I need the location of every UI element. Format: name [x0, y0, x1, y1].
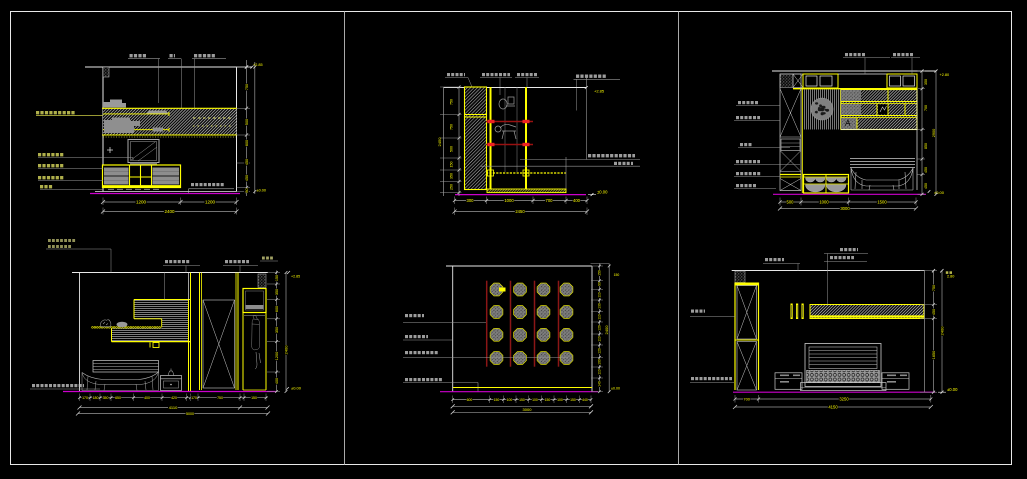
- svg-text:3000: 3000: [523, 407, 533, 412]
- svg-text:80: 80: [245, 188, 249, 192]
- svg-text:250: 250: [449, 184, 453, 190]
- svg-text:1500: 1500: [877, 200, 887, 205]
- svg-text:400: 400: [573, 198, 581, 203]
- svg-text:170: 170: [191, 396, 197, 400]
- svg-text:±0.00: ±0.00: [611, 387, 620, 391]
- svg-text:2400: 2400: [283, 345, 288, 355]
- svg-text:2400: 2400: [604, 325, 609, 335]
- svg-text:700: 700: [743, 397, 750, 402]
- svg-text:150: 150: [545, 398, 551, 402]
- svg-text:3000: 3000: [840, 206, 850, 211]
- svg-text:700: 700: [924, 105, 928, 111]
- svg-text:350: 350: [103, 396, 109, 400]
- svg-text:500: 500: [449, 146, 453, 152]
- svg-text:2450: 2450: [437, 137, 442, 147]
- svg-text:500: 500: [787, 200, 795, 205]
- svg-text:1200: 1200: [136, 200, 147, 205]
- svg-text:2900: 2900: [932, 129, 936, 137]
- svg-text:150: 150: [570, 398, 576, 402]
- svg-text:450: 450: [932, 309, 936, 315]
- svg-text:170: 170: [82, 396, 88, 400]
- svg-text:300: 300: [467, 198, 475, 203]
- svg-text:350: 350: [924, 79, 928, 85]
- svg-text:5000: 5000: [186, 412, 194, 416]
- svg-text:1650: 1650: [932, 351, 936, 359]
- svg-text:±0.00: ±0.00: [947, 387, 958, 392]
- svg-text:450: 450: [245, 159, 249, 165]
- svg-text:120: 120: [598, 325, 602, 331]
- svg-text:450: 450: [924, 167, 928, 173]
- svg-text:140: 140: [598, 381, 602, 387]
- svg-text:±0.00: ±0.00: [291, 386, 302, 391]
- svg-text:110: 110: [598, 336, 602, 341]
- svg-text:1000: 1000: [819, 200, 829, 205]
- svg-text:130: 130: [598, 303, 602, 309]
- svg-text:+2.85: +2.85: [291, 275, 300, 279]
- svg-text:150: 150: [494, 398, 500, 402]
- svg-text:750: 750: [449, 99, 453, 105]
- svg-text:120: 120: [598, 348, 602, 354]
- svg-text:150: 150: [519, 398, 525, 402]
- svg-text:180: 180: [93, 396, 99, 400]
- svg-text:2.80: 2.80: [947, 275, 954, 279]
- svg-text:600: 600: [467, 398, 473, 402]
- svg-text:650: 650: [115, 396, 121, 400]
- svg-text:1200: 1200: [205, 200, 216, 205]
- svg-text:±0.00: ±0.00: [257, 189, 266, 193]
- svg-text:110: 110: [598, 314, 602, 319]
- svg-text:420: 420: [171, 396, 177, 400]
- svg-text:500: 500: [245, 119, 249, 125]
- svg-text:+2.85: +2.85: [594, 89, 605, 94]
- svg-text:90: 90: [598, 282, 602, 286]
- svg-text:150: 150: [251, 396, 257, 400]
- svg-text:600: 600: [275, 306, 279, 312]
- svg-text:150: 150: [449, 162, 453, 168]
- svg-text:2450: 2450: [515, 209, 525, 214]
- svg-text:350: 350: [275, 327, 279, 333]
- svg-text:3250: 3250: [839, 397, 849, 402]
- svg-text:440: 440: [582, 398, 588, 402]
- svg-text:750: 750: [217, 396, 223, 400]
- svg-text:2400: 2400: [939, 326, 944, 336]
- svg-text:100: 100: [557, 398, 563, 402]
- svg-text:700: 700: [546, 198, 554, 203]
- svg-text:750: 750: [932, 285, 936, 291]
- svg-text:+2.80: +2.80: [940, 73, 950, 77]
- svg-text:100: 100: [507, 398, 513, 402]
- svg-text:150: 150: [614, 273, 620, 277]
- svg-text:4150: 4150: [828, 405, 838, 410]
- svg-text:150: 150: [598, 270, 602, 276]
- svg-text:850: 850: [924, 143, 928, 149]
- svg-text:400: 400: [144, 396, 150, 400]
- svg-text:350: 350: [449, 173, 453, 179]
- svg-text:100: 100: [532, 398, 538, 402]
- svg-text:750: 750: [245, 84, 249, 90]
- svg-text:1200: 1200: [275, 352, 279, 360]
- svg-text:110: 110: [598, 292, 602, 297]
- svg-text:750: 750: [449, 124, 453, 130]
- svg-text:450: 450: [245, 175, 249, 181]
- svg-text:+2.85: +2.85: [253, 63, 263, 67]
- svg-text:400: 400: [275, 378, 279, 384]
- svg-text:1000: 1000: [504, 198, 514, 203]
- svg-text:450: 450: [924, 183, 928, 189]
- svg-text:350: 350: [275, 289, 279, 295]
- svg-text:150: 150: [275, 275, 279, 281]
- svg-text:±0.00: ±0.00: [597, 190, 608, 195]
- svg-text:100: 100: [598, 359, 602, 365]
- svg-text:4110: 4110: [169, 405, 178, 410]
- svg-text:2400: 2400: [164, 209, 175, 214]
- svg-text:600: 600: [245, 140, 249, 146]
- svg-text:110: 110: [598, 369, 602, 374]
